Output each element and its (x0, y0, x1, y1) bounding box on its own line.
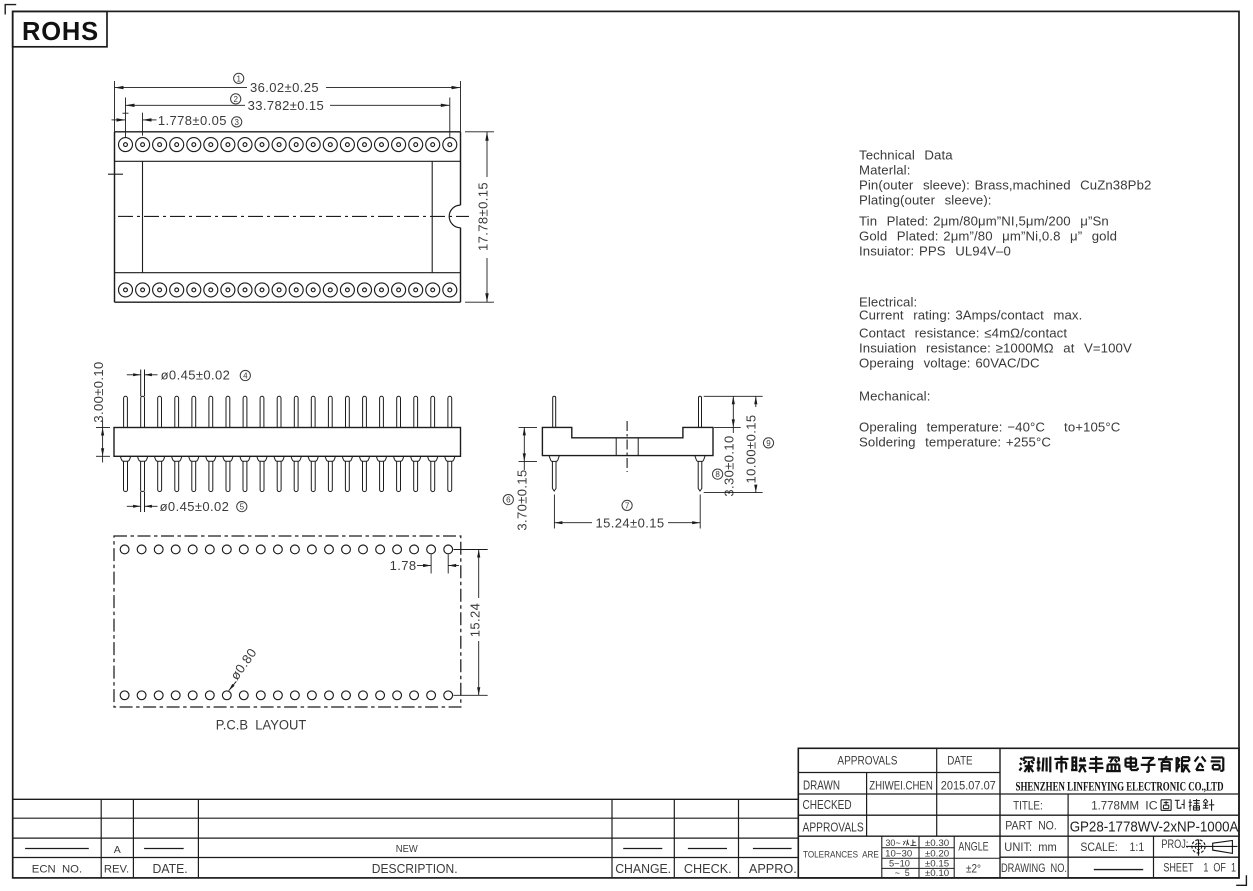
svg-text:Mechanical:: Mechanical: (859, 389, 930, 404)
svg-text:Materlal:: Materlal: (859, 163, 910, 178)
svg-text:ø0.45±0.02: ø0.45±0.02 (160, 499, 230, 514)
svg-text:8: 8 (715, 470, 720, 479)
svg-text:Pin(outer sleeve): Brass,mach: Pin(outer sleeve): Brass,machined CuZn38… (859, 178, 1151, 193)
svg-text:APPROVALS: APPROVALS (803, 821, 864, 835)
svg-text:15.24±0.15: 15.24±0.15 (596, 516, 665, 531)
svg-text:±0.10: ±0.10 (925, 868, 949, 879)
svg-text:1: 1 (236, 74, 241, 83)
svg-text:APPRO.: APPRO. (749, 862, 797, 876)
svg-text:DATE.: DATE. (153, 861, 188, 876)
svg-text:2: 2 (233, 95, 238, 104)
svg-text:Contact resistance: ≤4mΩ/cont: Contact resistance: ≤4mΩ/contact (859, 326, 1067, 341)
svg-text:SHENZHEN LINFENYING ELECTRONIC: SHENZHEN LINFENYING ELECTRONIC CO.,LTD (1016, 780, 1224, 794)
svg-text:CHANGE.: CHANGE. (615, 862, 671, 876)
svg-text:Operaing voltage: 60VAC/DC: Operaing voltage: 60VAC/DC (859, 356, 1040, 371)
svg-text:REV.: REV. (104, 864, 129, 876)
svg-text:IC: IC (1145, 799, 1158, 813)
svg-text:DESCRIPTION.: DESCRIPTION. (372, 861, 458, 876)
svg-text:10.00±0.15: 10.00±0.15 (744, 415, 759, 484)
svg-text:17.78±0.15: 17.78±0.15 (476, 182, 491, 251)
svg-text:ANGLE: ANGLE (958, 839, 988, 853)
svg-text:DRAWING NO.: DRAWING NO. (1001, 861, 1067, 875)
svg-text:APPROVALS: APPROVALS (837, 754, 897, 768)
svg-text:TITLE:: TITLE: (1013, 799, 1043, 813)
svg-text:2015.07.07: 2015.07.07 (941, 779, 996, 793)
svg-text:7: 7 (625, 501, 630, 510)
svg-text:5: 5 (240, 503, 245, 512)
svg-text:P.C.B LAYOUT: P.C.B LAYOUT (216, 718, 306, 733)
svg-text:DATE: DATE (947, 754, 972, 768)
svg-text:9: 9 (766, 439, 771, 448)
svg-text:SCALE: 1:1: SCALE: 1:1 (1080, 840, 1144, 854)
svg-text:ECN NO.: ECN NO. (32, 864, 82, 876)
svg-text:Operaling temperature: −40°C: Operaling temperature: −40°C to+105°C (859, 420, 1121, 435)
svg-text:CHECK.: CHECK. (684, 862, 732, 876)
svg-text:Soldering temperature: +255°C: Soldering temperature: +255°C (859, 435, 1051, 450)
svg-text:Gold Plated: 2μm”/80 μm”Ni,0: Gold Plated: 2μm”/80 μm”Ni,0.8 μ” gold (859, 229, 1117, 244)
svg-text:TOLERANCES ARE: TOLERANCES ARE (803, 850, 879, 861)
svg-text:4: 4 (243, 371, 248, 380)
svg-text:3: 3 (234, 118, 239, 127)
svg-text:Technical Data: Technical Data (859, 148, 953, 163)
svg-text:1.778±0.05: 1.778±0.05 (158, 113, 227, 128)
svg-text:SHEET 1 OF 1: SHEET 1 OF 1 (1163, 862, 1236, 874)
svg-text:3.70±0.15: 3.70±0.15 (515, 469, 530, 530)
svg-text:3.00±0.10: 3.00±0.10 (91, 361, 106, 422)
svg-text:PART NO.: PART NO. (1005, 819, 1057, 833)
svg-text:±2°: ±2° (966, 862, 981, 876)
svg-text:±0.30: ±0.30 (925, 838, 949, 849)
svg-text:NEW: NEW (396, 843, 418, 855)
svg-text:A: A (114, 844, 121, 856)
svg-text:UNIT: mm: UNIT: mm (1004, 840, 1057, 854)
svg-text:6: 6 (506, 496, 511, 505)
svg-text:Insuiation resistance: ≥1000M: Insuiation resistance: ≥1000MΩ at V=100V (859, 341, 1132, 356)
svg-text:1.78: 1.78 (390, 558, 417, 573)
svg-text:ROHS: ROHS (22, 18, 99, 46)
svg-text:36.02±0.25: 36.02±0.25 (250, 80, 319, 95)
svg-text:CHECKED: CHECKED (803, 798, 852, 812)
svg-text:ZHIWEI.CHEN: ZHIWEI.CHEN (869, 779, 933, 793)
svg-text:3.30±0.10: 3.30±0.10 (722, 435, 737, 496)
svg-text:PROJ:: PROJ: (1161, 839, 1188, 851)
svg-text:Current rating: 3Amps/contact: Current rating: 3Amps/contact max. (859, 308, 1082, 323)
svg-text:~ 5: ~ 5 (895, 868, 910, 879)
svg-text:ø0.45±0.02: ø0.45±0.02 (161, 368, 231, 383)
svg-text:Plating(outer sleeve):: Plating(outer sleeve): (859, 193, 992, 208)
svg-text:Insuiator: PPS UL94V–0: Insuiator: PPS UL94V–0 (859, 244, 1011, 259)
svg-text:ø0.80: ø0.80 (227, 645, 260, 682)
svg-text:30~: 30~ (886, 838, 901, 849)
svg-text:33.782±0.15: 33.782±0.15 (248, 98, 325, 113)
svg-text:DRAWN: DRAWN (803, 778, 840, 792)
svg-text:Tin Plated: 2μm/80μm”NI,5μm/2: Tin Plated: 2μm/80μm”NI,5μm/200 μ”Sn (859, 214, 1109, 229)
svg-text:GP28-1778WV-2xNP-1000A: GP28-1778WV-2xNP-1000A (1070, 819, 1239, 836)
svg-text:1.778MM: 1.778MM (1091, 799, 1139, 813)
svg-text:15.24: 15.24 (468, 603, 483, 638)
